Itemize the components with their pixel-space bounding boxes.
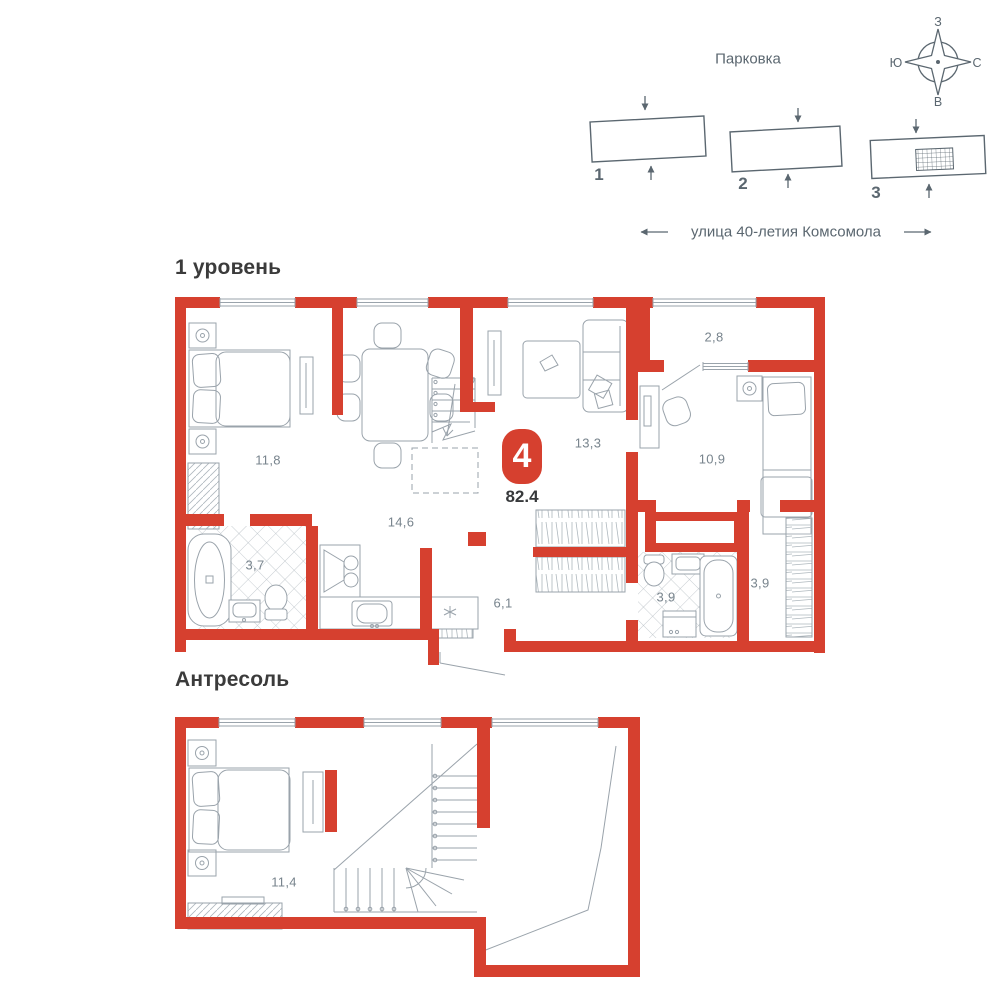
room-area-loggia: 2,8 — [705, 330, 724, 345]
parking-label: Парковка — [715, 51, 781, 68]
compass-west-label: З — [934, 15, 942, 29]
building-2-number: 2 — [738, 174, 747, 194]
room-area-bedroom: 11,8 — [255, 453, 281, 468]
shaft-niche — [656, 521, 734, 543]
mezzanine-heading: Антресоль — [175, 668, 289, 692]
dining-table-icon — [337, 323, 456, 468]
rooms-count-badge: 4 — [502, 429, 542, 484]
room-area-bathroom-2: 3,9 — [657, 590, 676, 605]
bathtub-icon — [700, 556, 737, 636]
compass-east-label: В — [934, 95, 942, 109]
shelving-icon — [786, 518, 812, 637]
balcony-door-swing — [662, 365, 700, 390]
level-1-heading: 1 уровень — [175, 256, 281, 280]
mezzanine-walls — [175, 717, 640, 977]
desk-icon — [640, 386, 693, 448]
room-area-kitchen-dining: 14,6 — [388, 515, 415, 530]
building-3-number: 3 — [871, 183, 880, 203]
roof-slope-line — [478, 746, 616, 953]
mezzanine-windows — [219, 718, 598, 727]
building-3-outline — [870, 136, 986, 179]
apartment-location-marker — [916, 148, 954, 171]
kitchen-counter-icon — [320, 597, 478, 629]
room-area-wardrobe-room: 3,9 — [751, 576, 770, 591]
sink-icon — [672, 554, 704, 574]
wardrobe-icon — [536, 510, 625, 547]
bed-double-icon — [188, 740, 290, 876]
compass-north-label: С — [972, 56, 981, 70]
street-label: улица 40-летия Комсомола — [691, 224, 881, 241]
total-area-label: 82.4 — [494, 487, 550, 507]
sink-icon — [229, 600, 260, 622]
level-1-floor-plan — [175, 297, 825, 675]
void-dashed-outline — [412, 448, 478, 493]
bathtub-icon — [188, 534, 231, 626]
wardrobe-icon — [536, 557, 625, 592]
room-area-bedroom-mezzanine: 11,4 — [271, 875, 297, 890]
stove-icon — [320, 545, 360, 597]
mezzanine-floor-plan — [175, 717, 640, 977]
room-area-bathroom: 3,7 — [246, 558, 265, 573]
room-area-living-room: 13,3 — [575, 436, 602, 451]
site-plan — [590, 29, 986, 232]
room-area-hallway: 6,1 — [494, 596, 513, 611]
building-2-outline — [730, 126, 842, 172]
bed-double-icon — [189, 323, 290, 454]
washing-machine-icon — [663, 611, 696, 637]
sofa-icon — [583, 320, 628, 412]
coffee-table-icon — [523, 341, 580, 398]
toilet-icon — [265, 585, 287, 620]
toilet-icon — [644, 555, 664, 586]
rooms-count-value: 4 — [513, 437, 532, 476]
entrance-door-swing — [440, 663, 505, 675]
compass-icon — [905, 29, 971, 95]
compass-south-label: Ю — [890, 56, 903, 70]
building-1-outline — [590, 116, 706, 162]
nightstand-lamp-icon — [737, 376, 762, 401]
room-area-bedroom-2: 10,9 — [699, 452, 726, 467]
stairs-icon — [334, 744, 477, 912]
building-1-number: 1 — [594, 165, 603, 185]
